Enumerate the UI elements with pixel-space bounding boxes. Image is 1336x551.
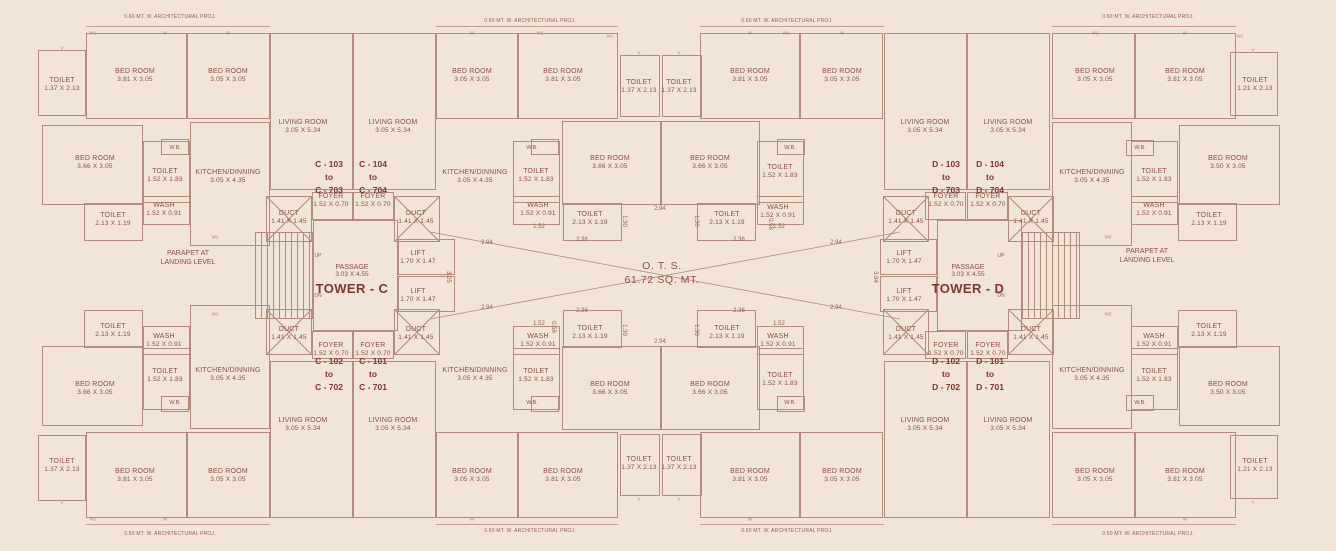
room-name: WASH — [520, 332, 555, 341]
room-name: TOILET — [147, 167, 182, 176]
room-dim: 1.37 X 2.13 — [661, 464, 696, 472]
room-name: TOILET — [1237, 76, 1272, 85]
room-dim: 3.81 X 3.05 — [543, 76, 583, 84]
unit-number-line: D - 702 — [932, 380, 960, 393]
room-label: BED ROOM3.66 X 3.05 — [75, 380, 115, 398]
room-dim: 1.41 X 1.45 — [398, 334, 433, 342]
architectural-projection-label: 0.60 MT. W. ARCHITECTURAL PROJ. — [484, 528, 576, 534]
room-dim: 3.05 X 4.35 — [442, 375, 507, 383]
unit-number-label: D - 101toD - 701 — [976, 355, 1004, 393]
wall-marker: W1 — [607, 34, 614, 39]
room-name: LIFT — [886, 249, 921, 258]
passage-dim: 3.03 X 4.55 — [316, 271, 389, 278]
room-name: TOILET — [661, 78, 696, 87]
room-dim: 3.05 X 3.05 — [452, 476, 492, 484]
room-dim: 2.13 X 1.19 — [95, 220, 130, 228]
room-name: TOILET — [1191, 211, 1226, 220]
room-dim: 3.05 X 4.35 — [1059, 177, 1124, 185]
dimension-label: 2.94 — [481, 305, 493, 311]
dimension-label: 2.94 — [481, 240, 493, 246]
wall-marker: W — [470, 31, 474, 36]
unit-number-line: C - 101 — [359, 355, 387, 368]
wall-marker: W — [840, 31, 844, 36]
unit-number-line: to — [359, 171, 387, 184]
room-name: TOILET — [621, 78, 656, 87]
room-dim: 1.41 X 1.45 — [888, 334, 923, 342]
unit-number-line: D - 104 — [976, 158, 1004, 171]
room-label: LIVING ROOM3.05 X 5.34 — [369, 118, 418, 136]
room-dim: 2.13 X 1.19 — [95, 331, 130, 339]
room-name: FOYER — [970, 341, 1005, 350]
room-dim: 3.05 X 5.34 — [279, 425, 328, 433]
room-dim: 3.81 X 3.05 — [115, 476, 155, 484]
room-label: BED ROOM3.81 X 3.05 — [730, 467, 770, 485]
room-name: LIFT — [886, 287, 921, 296]
room-label: TOILET1.52 X 1.83 — [147, 367, 182, 385]
room-dim: 1.41 X 1.45 — [271, 334, 306, 342]
dimension-label: 3.05 — [445, 271, 451, 283]
room-label: TOILET1.21 X 2.13 — [1237, 457, 1272, 475]
room-dim: 1.52 X 0.91 — [520, 210, 555, 218]
unit-number-line: C - 102 — [315, 355, 343, 368]
ots-area: 61.72 SQ. MT. — [625, 273, 700, 287]
room-name: TOILET — [44, 76, 79, 85]
room-label: TOILET1.52 X 1.83 — [147, 167, 182, 185]
dimension-label: 1.30 — [693, 324, 699, 336]
room-name: BED ROOM — [452, 67, 492, 76]
wall-marker: V — [677, 51, 680, 56]
room-name: BED ROOM — [590, 380, 630, 389]
room-dim: 3.05 X 4.35 — [1059, 375, 1124, 383]
room-name: BED ROOM — [75, 380, 115, 389]
room-name: TOILET — [518, 367, 553, 376]
room-label: BED ROOM3.50 X 3.05 — [1208, 380, 1248, 398]
passage-dim: 3.03 X 4.55 — [932, 271, 1005, 278]
room-dim: 3.05 X 3.05 — [208, 476, 248, 484]
parapet-line: LANDING LEVEL — [1120, 256, 1175, 265]
room-name: TOILET — [147, 367, 182, 376]
architectural-projection-label: 0.60 MT. W. ARCHITECTURAL PROJ. — [741, 18, 833, 24]
room-name: LIVING ROOM — [901, 118, 950, 127]
room-dim: 2.13 X 1.19 — [1191, 331, 1226, 339]
room-name: FOYER — [928, 341, 963, 350]
room-name: WASH — [1136, 201, 1171, 210]
wb-label: W.B. — [784, 400, 796, 406]
room-dim: 3.05 X 3.05 — [822, 76, 862, 84]
room-name: BED ROOM — [543, 467, 583, 476]
room-label: BED ROOM3.81 X 3.05 — [730, 67, 770, 85]
room-dim: 2.13 X 1.19 — [572, 333, 607, 341]
room-dim: 1.52 X 1.83 — [518, 376, 553, 384]
wb-label: W.B. — [526, 400, 538, 406]
room-name: DUCT — [271, 209, 306, 218]
room-name: BED ROOM — [730, 467, 770, 476]
room-name: KITCHEN/DINNING — [195, 168, 260, 177]
room-label: WASH1.52 X 0.91 — [760, 203, 795, 221]
wb-label: W.B. — [1134, 145, 1146, 151]
wall-marker: W1 — [537, 31, 544, 36]
room-dim: 1.52 X 0.70 — [928, 201, 963, 209]
room-label: BED ROOM3.05 X 3.05 — [1075, 467, 1115, 485]
unit-number-line: C - 104 — [359, 158, 387, 171]
room-name: BED ROOM — [730, 67, 770, 76]
room-label: WASH1.52 X 0.91 — [146, 332, 181, 350]
room-label: BED ROOM3.81 X 3.05 — [115, 467, 155, 485]
wall-marker: W1 — [90, 517, 97, 522]
room-label: WASH1.52 X 0.91 — [760, 332, 795, 350]
room-dim: 1.70 X 1.47 — [400, 296, 435, 304]
unit-number-line: C - 103 — [315, 158, 343, 171]
room-name: TOILET — [762, 371, 797, 380]
room-name: TOILET — [572, 210, 607, 219]
unit-number-label: D - 104toD - 704 — [976, 158, 1004, 196]
room-dim: 3.05 X 3.05 — [1075, 76, 1115, 84]
dimension-label: 2.94 — [654, 206, 666, 212]
room-dim: 3.05 X 5.34 — [901, 425, 950, 433]
room-name: DUCT — [398, 325, 433, 334]
room-dim: 3.81 X 3.05 — [543, 476, 583, 484]
room-dim: 1.52 X 0.91 — [520, 341, 555, 349]
room-name: LIVING ROOM — [369, 416, 418, 425]
room-label: LIFT1.70 X 1.47 — [886, 287, 921, 305]
dimension-label: 2.36 — [733, 237, 745, 243]
floor-plan: TOILET1.37 X 2.13BED ROOM3.81 X 3.05BED … — [0, 0, 1336, 551]
room-dim: 3.05 X 5.34 — [369, 425, 418, 433]
room-label: TOILET2.13 X 1.19 — [572, 324, 607, 342]
room-dim: 1.52 X 0.91 — [1136, 341, 1171, 349]
room-label: TOILET1.52 X 1.83 — [518, 367, 553, 385]
room-dim: 1.52 X 1.83 — [518, 176, 553, 184]
dimension-label: 2.36 — [576, 308, 588, 314]
room-name: BED ROOM — [75, 154, 115, 163]
room-dim: 3.81 X 3.05 — [1165, 476, 1205, 484]
room-label: DUCT1.41 X 1.45 — [271, 209, 306, 227]
projection-line — [1052, 524, 1236, 525]
room-label: TOILET2.13 X 1.19 — [95, 322, 130, 340]
wall-marker: W1 — [1237, 34, 1244, 39]
unit-number-label: C - 103toC - 703 — [315, 158, 343, 196]
room-name: KITCHEN/DINNING — [442, 168, 507, 177]
room-name: LIFT — [400, 287, 435, 296]
room-dim: 3.05 X 5.34 — [279, 127, 328, 135]
room-name: BED ROOM — [822, 467, 862, 476]
room-dim: 2.13 X 1.19 — [1191, 220, 1226, 228]
room-dim: 1.41 X 1.45 — [1013, 334, 1048, 342]
dimension-label: 1.52 — [773, 224, 785, 230]
room-name: BED ROOM — [1075, 67, 1115, 76]
room-label: TOILET2.13 X 1.19 — [1191, 211, 1226, 229]
room-label: LIFT1.70 X 1.47 — [400, 287, 435, 305]
wall-marker: V — [60, 501, 63, 506]
room-label: TOILET1.37 X 2.13 — [44, 457, 79, 475]
tower-label: PASSAGE3.03 X 4.55TOWER - C — [316, 264, 389, 296]
wall-marker: V — [637, 51, 640, 56]
room-name: BED ROOM — [690, 380, 730, 389]
unit-number-line: to — [976, 171, 1004, 184]
room-dim: 3.05 X 3.05 — [452, 76, 492, 84]
room-name: WASH — [146, 332, 181, 341]
room-label: DUCT1.41 X 1.45 — [1013, 209, 1048, 227]
tower-name: TOWER - C — [316, 281, 389, 296]
room-label: KITCHEN/DINNING3.05 X 4.35 — [1059, 366, 1124, 384]
room-label: BED ROOM3.05 X 3.05 — [1075, 67, 1115, 85]
room-dim: 3.05 X 5.34 — [369, 127, 418, 135]
room-dim: 1.52 X 0.91 — [760, 212, 795, 220]
unit-number-label: C - 101toC - 701 — [359, 355, 387, 393]
room-dim: 3.05 X 3.05 — [822, 476, 862, 484]
room-dim: 3.66 X 3.05 — [75, 389, 115, 397]
room-dim: 1.52 X 1.83 — [147, 376, 182, 384]
room-label: TOILET2.13 X 1.19 — [95, 211, 130, 229]
passage-name: PASSAGE — [316, 264, 389, 271]
dimension-label: 2.94 — [830, 240, 842, 246]
room-label: BED ROOM3.05 X 3.05 — [452, 67, 492, 85]
projection-line — [700, 26, 884, 27]
room-label: WASH1.52 X 0.91 — [1136, 201, 1171, 219]
unit-number-line: C - 704 — [359, 183, 387, 196]
room-dim: 1.52 X 0.91 — [146, 341, 181, 349]
room-label: WASH1.52 X 0.91 — [146, 201, 181, 219]
unit-number-line: C - 703 — [315, 183, 343, 196]
room-name: LIVING ROOM — [279, 118, 328, 127]
room-dim: 2.13 X 1.19 — [709, 219, 744, 227]
room-name: KITCHEN/DINNING — [1059, 366, 1124, 375]
room-label: BED ROOM3.81 X 3.05 — [543, 467, 583, 485]
dimension-label: 1.52 — [773, 321, 785, 327]
room-label: BED ROOM3.81 X 3.05 — [543, 67, 583, 85]
room-label: LIVING ROOM3.05 X 5.34 — [984, 416, 1033, 434]
room-name: LIVING ROOM — [279, 416, 328, 425]
room-dim: 2.13 X 1.19 — [709, 333, 744, 341]
ots-label: O. T. S.61.72 SQ. MT. — [625, 259, 700, 287]
room-name: TOILET — [1136, 367, 1171, 376]
dimension-label: 1.30 — [621, 215, 627, 227]
wb-label: W.B. — [526, 145, 538, 151]
room-name: DUCT — [398, 209, 433, 218]
dimension-label: 3.94 — [872, 271, 878, 283]
room-dim: 3.05 X 4.35 — [442, 177, 507, 185]
room-label: DUCT1.41 X 1.45 — [271, 325, 306, 343]
stair-direction-label: UP — [998, 253, 1005, 259]
dimension-label: 1.30 — [693, 215, 699, 227]
room-name: TOILET — [1191, 322, 1226, 331]
room-name: TOILET — [518, 167, 553, 176]
room-label: TOILET1.37 X 2.13 — [621, 455, 656, 473]
wall-marker: V — [677, 497, 680, 502]
room-dim: 1.37 X 2.13 — [44, 85, 79, 93]
room-label: TOILET2.13 X 1.19 — [709, 324, 744, 342]
room-label: BED ROOM3.81 X 3.05 — [1165, 467, 1205, 485]
stair-direction-label: DN — [997, 293, 1004, 299]
room-name: WASH — [1136, 332, 1171, 341]
room-label: TOILET1.52 X 1.83 — [762, 163, 797, 181]
room-name: TOILET — [44, 457, 79, 466]
room-dim: 1.37 X 2.13 — [621, 87, 656, 95]
wall-marker: W — [470, 517, 474, 522]
room-name: TOILET — [1136, 167, 1171, 176]
room-name: TOILET — [621, 455, 656, 464]
room-dim: 1.52 X 1.83 — [762, 380, 797, 388]
room-dim: 1.21 X 2.13 — [1237, 85, 1272, 93]
room-name: BED ROOM — [690, 154, 730, 163]
room-label: BED ROOM3.66 X 3.05 — [690, 380, 730, 398]
wall-marker: W1 — [90, 31, 97, 36]
room-dim: 1.52 X 1.83 — [1136, 376, 1171, 384]
room-dim: 3.05 X 4.35 — [195, 375, 260, 383]
projection-line — [1052, 26, 1236, 27]
room-name: FOYER — [355, 341, 390, 350]
projection-line — [436, 524, 618, 525]
staircase — [1022, 232, 1080, 319]
room-label: LIFT1.70 X 1.47 — [400, 249, 435, 267]
room-dim: 1.52 X 0.91 — [146, 210, 181, 218]
room-label: BED ROOM3.05 X 3.05 — [452, 467, 492, 485]
room-dim: 1.52 X 1.83 — [762, 172, 797, 180]
room-name: FOYER — [313, 341, 348, 350]
room-name: BED ROOM — [208, 467, 248, 476]
architectural-projection-label: 0.60 MT. W. ARCHITECTURAL PROJ. — [741, 528, 833, 534]
unit-number-line: C - 702 — [315, 380, 343, 393]
tower-label: PASSAGE3.03 X 4.55TOWER - D — [932, 264, 1005, 296]
dimension-label: 2.36 — [733, 308, 745, 314]
unit-number-label: C - 102toC - 702 — [315, 355, 343, 393]
room-label: TOILET2.13 X 1.19 — [709, 210, 744, 228]
room-name: LIFT — [400, 249, 435, 258]
room-label: BED ROOM3.66 X 3.05 — [590, 380, 630, 398]
room-dim: 1.52 X 1.83 — [1136, 176, 1171, 184]
unit-number-line: to — [932, 171, 960, 184]
room-name: BED ROOM — [1208, 154, 1248, 163]
room-label: BED ROOM3.05 X 3.05 — [208, 467, 248, 485]
dimension-label: 1.52 — [533, 224, 545, 230]
dimension-label: 0.58 — [550, 321, 556, 333]
room-name: BED ROOM — [590, 154, 630, 163]
room-label: BED ROOM3.05 X 3.05 — [822, 67, 862, 85]
room-dim: 3.81 X 3.05 — [1165, 76, 1205, 84]
unit-number-line: C - 701 — [359, 380, 387, 393]
wall-marker: W — [1183, 31, 1187, 36]
room-name: BED ROOM — [452, 467, 492, 476]
room-dim: 3.05 X 5.34 — [984, 127, 1033, 135]
room-name: LIVING ROOM — [984, 416, 1033, 425]
room-name: BED ROOM — [543, 67, 583, 76]
room-name: TOILET — [709, 210, 744, 219]
room-label: KITCHEN/DINNING3.05 X 4.35 — [442, 366, 507, 384]
room-label: TOILET1.37 X 2.13 — [661, 78, 696, 96]
room-label: TOILET1.52 X 1.83 — [762, 371, 797, 389]
room-dim: 1.52 X 1.83 — [147, 176, 182, 184]
unit-number-line: to — [315, 171, 343, 184]
room-dim: 1.41 X 1.45 — [888, 218, 923, 226]
room-name: BED ROOM — [115, 467, 155, 476]
wall-marker: V — [60, 46, 63, 51]
room-name: DUCT — [888, 325, 923, 334]
projection-line — [86, 524, 270, 525]
room-label: BED ROOM3.81 X 3.05 — [115, 67, 155, 85]
room-dim: 3.50 X 3.05 — [1208, 163, 1248, 171]
room-label: TOILET2.13 X 1.19 — [1191, 322, 1226, 340]
wall-marker: W2 — [1105, 312, 1112, 317]
room-label: BED ROOM3.50 X 3.05 — [1208, 154, 1248, 172]
wb-label: W.B. — [1134, 400, 1146, 406]
room-dim: 3.81 X 3.05 — [115, 76, 155, 84]
parapet-line: LANDING LEVEL — [161, 258, 216, 267]
architectural-projection-label: 0.60 MT. W. ARCHITECTURAL PROJ. — [1102, 14, 1194, 20]
dimension-label: 1.52 — [533, 321, 545, 327]
tower-name: TOWER - D — [932, 281, 1005, 296]
room-label: TOILET1.37 X 2.13 — [44, 76, 79, 94]
staircase — [255, 232, 313, 319]
room-label: BED ROOM3.66 X 3.05 — [690, 154, 730, 172]
room-dim: 3.66 X 3.05 — [690, 389, 730, 397]
room-name: LIVING ROOM — [369, 118, 418, 127]
wall-marker: W — [226, 31, 230, 36]
room-label: BED ROOM3.05 X 3.05 — [822, 467, 862, 485]
unit-number-line: D - 103 — [932, 158, 960, 171]
room-label: LIVING ROOM3.05 X 5.34 — [901, 118, 950, 136]
unit-number-label: C - 104toC - 704 — [359, 158, 387, 196]
room-label: KITCHEN/DINNING3.05 X 4.35 — [195, 168, 260, 186]
unit-number-line: D - 701 — [976, 380, 1004, 393]
parapet-label: PARAPET ATLANDING LEVEL — [161, 249, 216, 267]
room-label: DUCT1.41 X 1.45 — [1013, 325, 1048, 343]
ots-name: O. T. S. — [625, 259, 700, 273]
room-name: DUCT — [1013, 325, 1048, 334]
wb-label: W.B. — [784, 145, 796, 151]
room-name: LIVING ROOM — [984, 118, 1033, 127]
room-name: TOILET — [95, 211, 130, 220]
projection-line — [700, 524, 884, 525]
unit-number-label: D - 102toD - 702 — [932, 355, 960, 393]
dimension-label: 2.36 — [576, 237, 588, 243]
room-label: BED ROOM3.66 X 3.05 — [590, 154, 630, 172]
room-label: LIFT1.70 X 1.47 — [886, 249, 921, 267]
room-label: LIVING ROOM3.05 X 5.34 — [901, 416, 950, 434]
room-name: WASH — [146, 201, 181, 210]
room-dim: 3.66 X 3.05 — [590, 389, 630, 397]
dimension-label: 2.94 — [830, 305, 842, 311]
room-dim: 3.66 X 3.05 — [690, 163, 730, 171]
room-label: BED ROOM3.05 X 3.05 — [208, 67, 248, 85]
room-name: TOILET — [709, 324, 744, 333]
room-label: KITCHEN/DINNING3.05 X 4.35 — [195, 366, 260, 384]
room-label: WASH1.52 X 0.91 — [520, 201, 555, 219]
passage-name: PASSAGE — [932, 264, 1005, 271]
room-label: LIVING ROOM3.05 X 5.34 — [279, 118, 328, 136]
unit-number-line: D - 703 — [932, 183, 960, 196]
projection-line — [86, 26, 270, 27]
room-name: BED ROOM — [1208, 380, 1248, 389]
room-label: LIVING ROOM3.05 X 5.34 — [369, 416, 418, 434]
dimension-label: 1.30 — [621, 324, 627, 336]
room-label: TOILET1.52 X 1.83 — [1136, 367, 1171, 385]
room-label: TOILET1.52 X 1.83 — [1136, 167, 1171, 185]
room-label: WASH1.52 X 0.91 — [520, 332, 555, 350]
room-label: TOILET1.37 X 2.13 — [621, 78, 656, 96]
parapet-line: PARAPET AT — [161, 249, 216, 258]
unit-number-line: to — [359, 368, 387, 381]
parapet-label: PARAPET ATLANDING LEVEL — [1120, 247, 1175, 265]
room-dim: 3.05 X 5.34 — [901, 127, 950, 135]
room-label: DUCT1.41 X 1.45 — [888, 209, 923, 227]
room-label: DUCT1.41 X 1.45 — [398, 209, 433, 227]
architectural-projection-label: 0.60 MT. W. ARCHITECTURAL PROJ. — [124, 14, 216, 20]
parapet-line: PARAPET AT — [1120, 247, 1175, 256]
room-dim: 3.05 X 5.34 — [984, 425, 1033, 433]
room-label: TOILET1.21 X 2.13 — [1237, 76, 1272, 94]
room-dim: 1.52 X 0.91 — [1136, 210, 1171, 218]
room-label: LIVING ROOM3.05 X 5.34 — [279, 416, 328, 434]
